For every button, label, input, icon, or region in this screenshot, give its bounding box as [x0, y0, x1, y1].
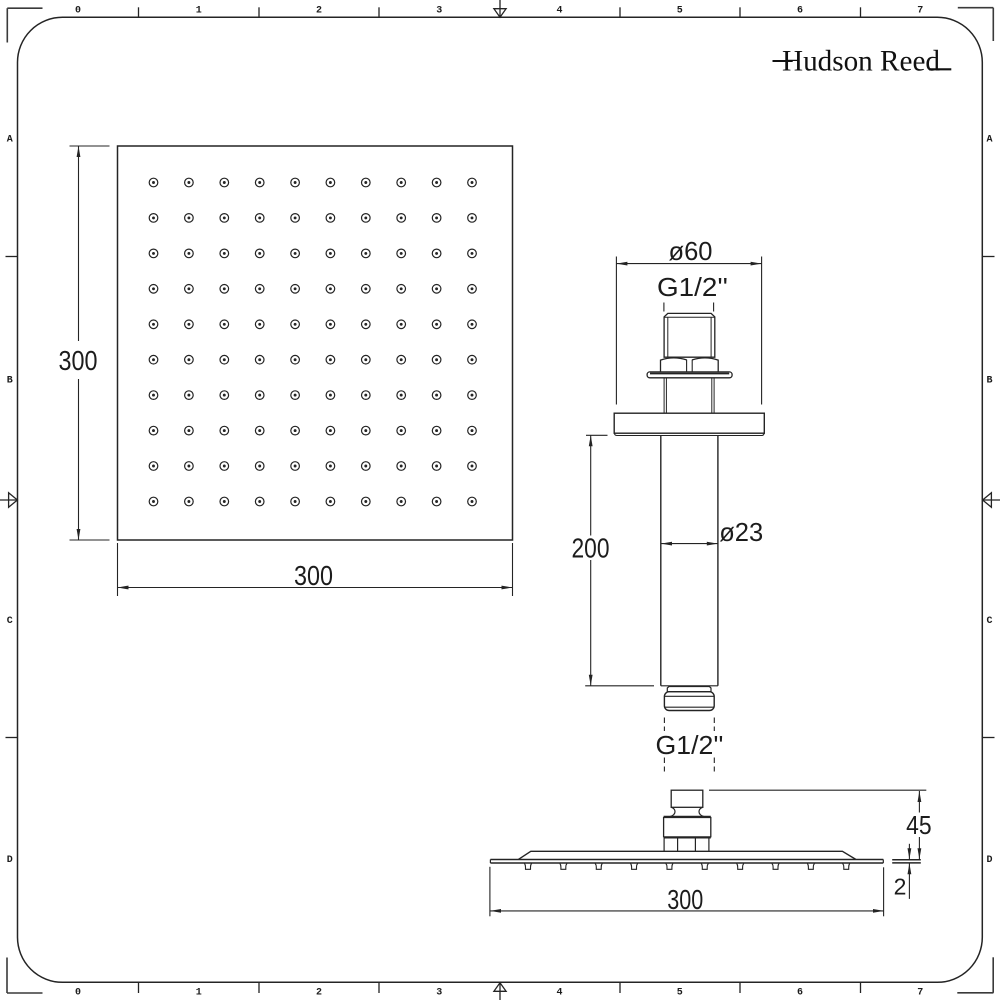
svg-text:300: 300	[294, 560, 333, 591]
svg-text:1: 1	[196, 987, 202, 998]
svg-text:3: 3	[436, 987, 442, 998]
svg-text:2: 2	[316, 987, 322, 998]
svg-text:5: 5	[677, 6, 683, 17]
svg-text:300: 300	[667, 884, 703, 915]
svg-text:B: B	[7, 376, 13, 387]
svg-text:4: 4	[556, 987, 562, 998]
svg-text:6: 6	[797, 987, 803, 998]
svg-text:A: A	[986, 135, 992, 146]
svg-text:4: 4	[556, 6, 562, 17]
svg-text:200: 200	[572, 533, 610, 564]
svg-text:1: 1	[196, 6, 202, 17]
svg-text:5: 5	[677, 987, 683, 998]
svg-text:2: 2	[316, 6, 322, 17]
svg-text:7: 7	[917, 6, 923, 17]
svg-text:A: A	[7, 135, 13, 146]
svg-text:ø23: ø23	[719, 517, 763, 547]
svg-text:G1/2'': G1/2''	[657, 272, 728, 302]
svg-text:C: C	[7, 616, 13, 627]
svg-text:7: 7	[917, 987, 923, 998]
svg-text:0: 0	[75, 987, 81, 998]
svg-text:0: 0	[75, 6, 81, 17]
svg-text:45: 45	[906, 810, 932, 840]
svg-text:B: B	[986, 376, 992, 387]
svg-text:2: 2	[894, 874, 907, 900]
svg-text:ø60: ø60	[669, 236, 713, 266]
svg-text:G1/2'': G1/2''	[656, 730, 724, 760]
svg-text:6: 6	[797, 6, 803, 17]
svg-text:C: C	[986, 616, 992, 627]
svg-text:3: 3	[436, 6, 442, 17]
svg-text:300: 300	[59, 345, 98, 376]
svg-text:D: D	[7, 855, 13, 866]
svg-text:D: D	[986, 855, 992, 866]
svg-text:Hudson Reed: Hudson Reed	[782, 46, 940, 78]
